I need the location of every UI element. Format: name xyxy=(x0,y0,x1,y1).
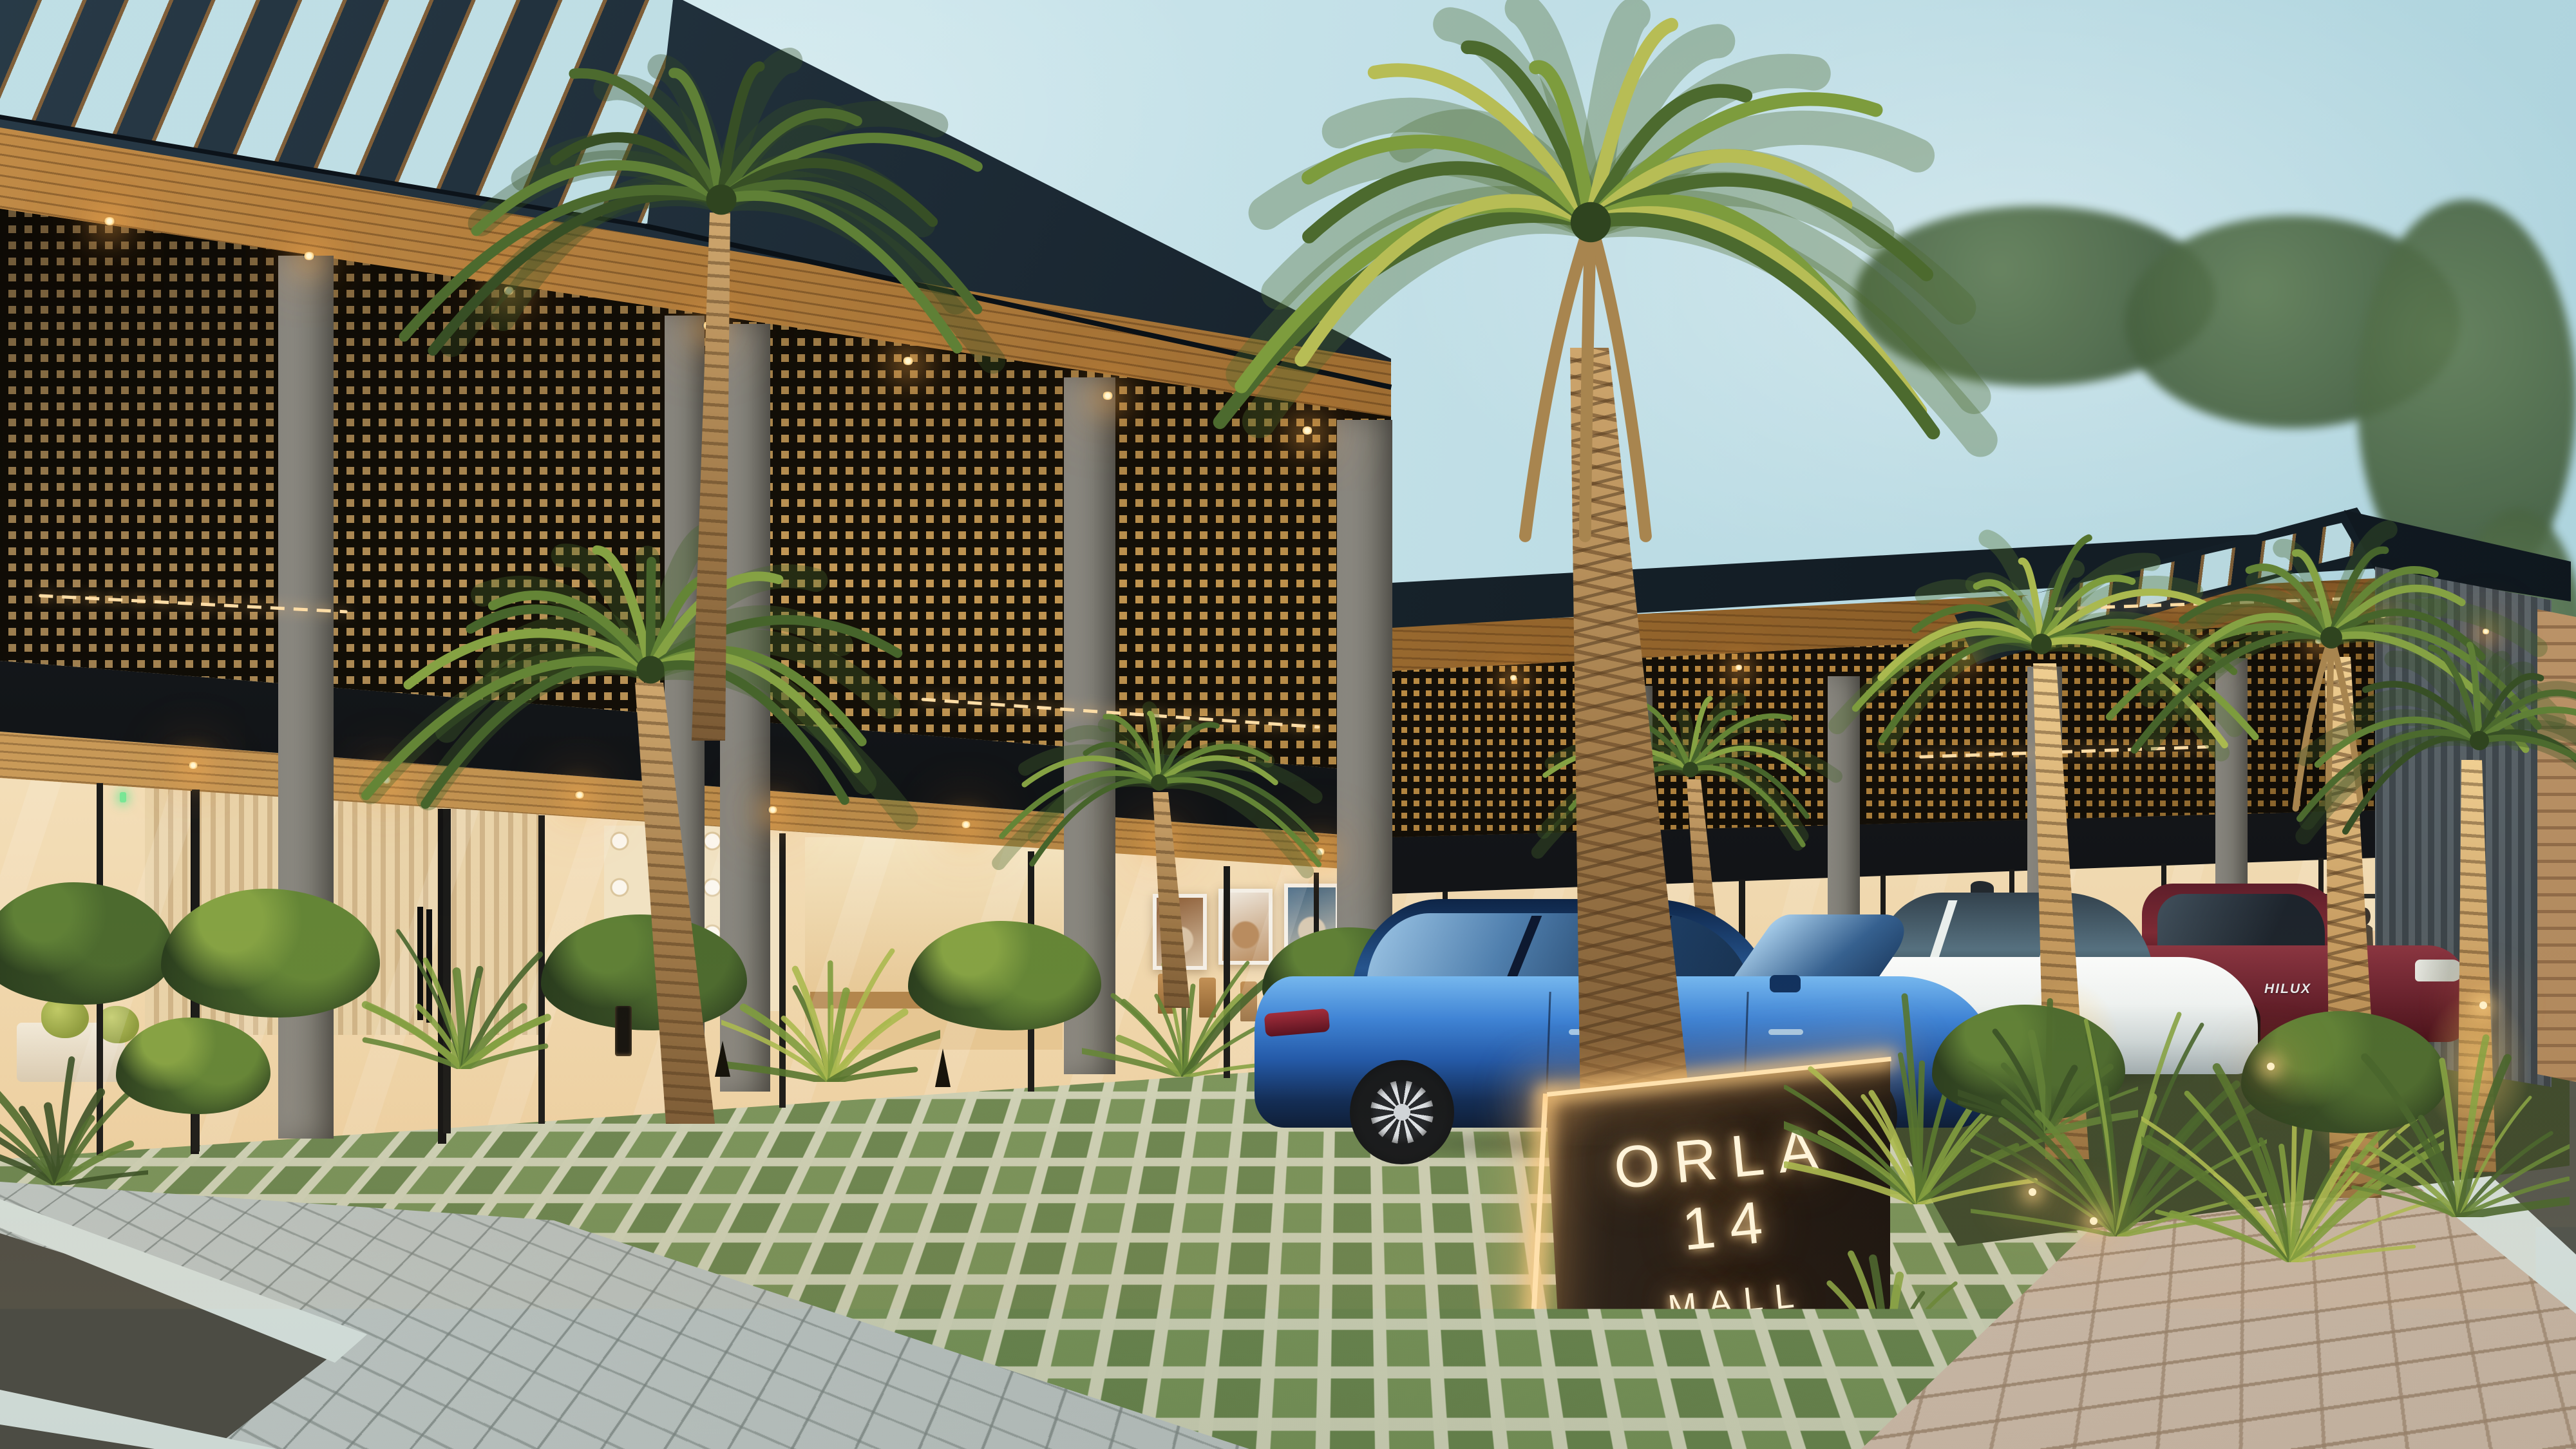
garden-path-light xyxy=(2029,1188,2036,1196)
garden-path-light xyxy=(2267,1063,2275,1070)
garden-bollard-light xyxy=(935,1048,951,1087)
mall-exterior-rendering: HILUX xyxy=(0,0,2576,1449)
garden-bollard-light xyxy=(715,1041,730,1077)
garden-path-light xyxy=(2090,1217,2098,1225)
garden-accents xyxy=(0,0,2576,1449)
garden-bollard-light xyxy=(615,1006,632,1056)
garden-path-light xyxy=(2479,1001,2487,1009)
